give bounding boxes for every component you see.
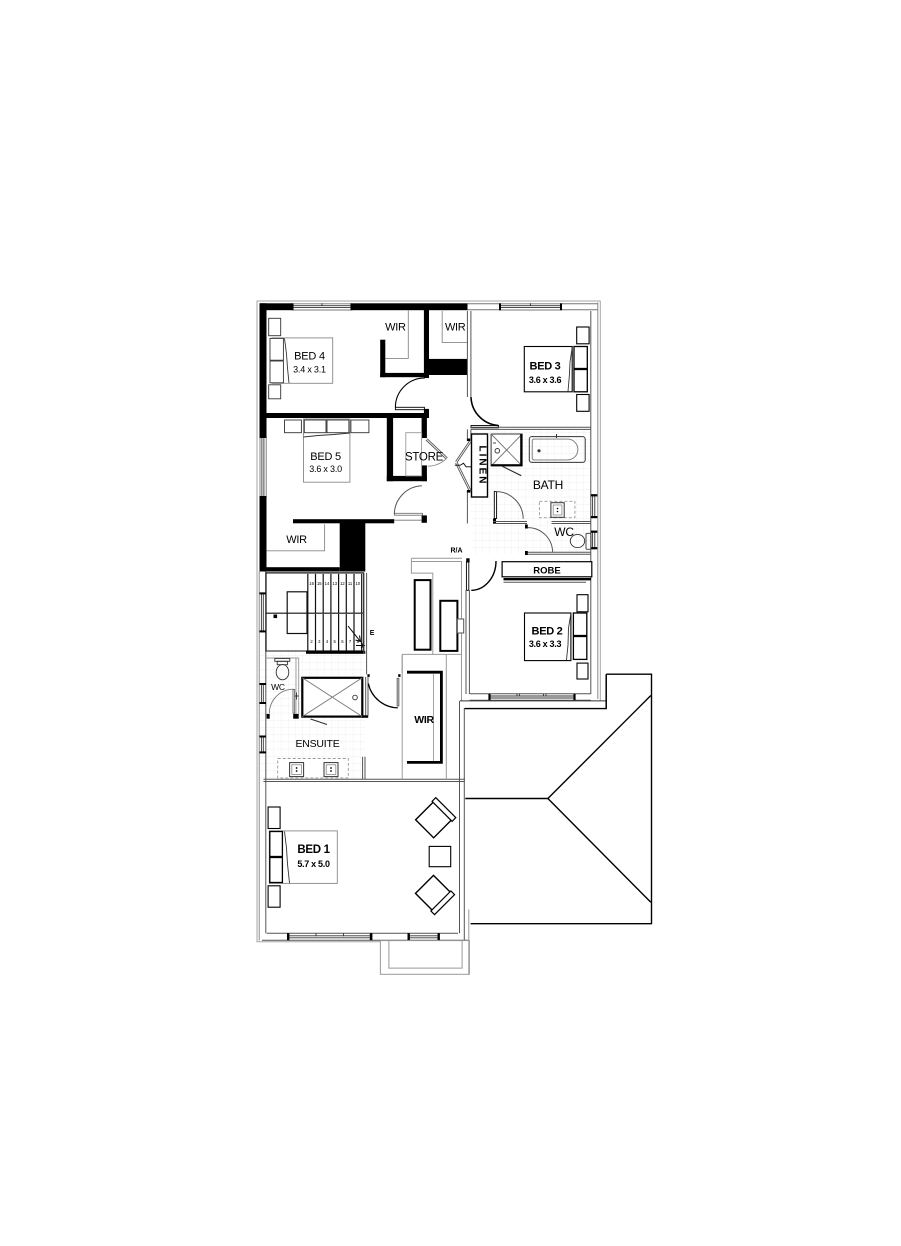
svg-text:LINEN: LINEN <box>477 446 488 486</box>
svg-text:10: 10 <box>355 581 360 586</box>
svg-text:WC: WC <box>554 525 574 539</box>
svg-text:WIR: WIR <box>414 714 434 726</box>
svg-text:WIR: WIR <box>385 322 406 334</box>
svg-text:3.6 x 3.0: 3.6 x 3.0 <box>309 464 342 474</box>
svg-text:12: 12 <box>340 581 345 586</box>
svg-text:15: 15 <box>317 581 322 586</box>
svg-text:3.6 x 3.6: 3.6 x 3.6 <box>529 375 562 385</box>
svg-text:WIR: WIR <box>445 322 466 334</box>
svg-text:14: 14 <box>325 581 330 586</box>
svg-text:3.4 x 3.1: 3.4 x 3.1 <box>293 365 326 375</box>
svg-text:BATH: BATH <box>533 478 563 492</box>
svg-text:ENSUITE: ENSUITE <box>295 738 339 750</box>
svg-text:16: 16 <box>309 581 314 586</box>
svg-text:BED 3: BED 3 <box>530 360 561 372</box>
svg-text:3.6 x 3.3: 3.6 x 3.3 <box>529 639 562 649</box>
svg-text:13: 13 <box>332 581 337 586</box>
svg-text:BED 4: BED 4 <box>294 350 325 362</box>
svg-text:BED 5: BED 5 <box>310 451 341 463</box>
svg-text:STORE: STORE <box>405 452 444 464</box>
svg-text:ROBE: ROBE <box>533 566 560 577</box>
svg-text:E: E <box>370 630 375 637</box>
svg-text:R/A: R/A <box>450 547 462 554</box>
svg-text:5.7 x 5.0: 5.7 x 5.0 <box>297 859 330 869</box>
svg-text:BED 2: BED 2 <box>532 625 563 637</box>
svg-text:WC: WC <box>271 682 285 692</box>
svg-text:WIR: WIR <box>286 534 307 546</box>
svg-text:BED 1: BED 1 <box>297 844 330 856</box>
svg-text:11: 11 <box>348 581 353 586</box>
